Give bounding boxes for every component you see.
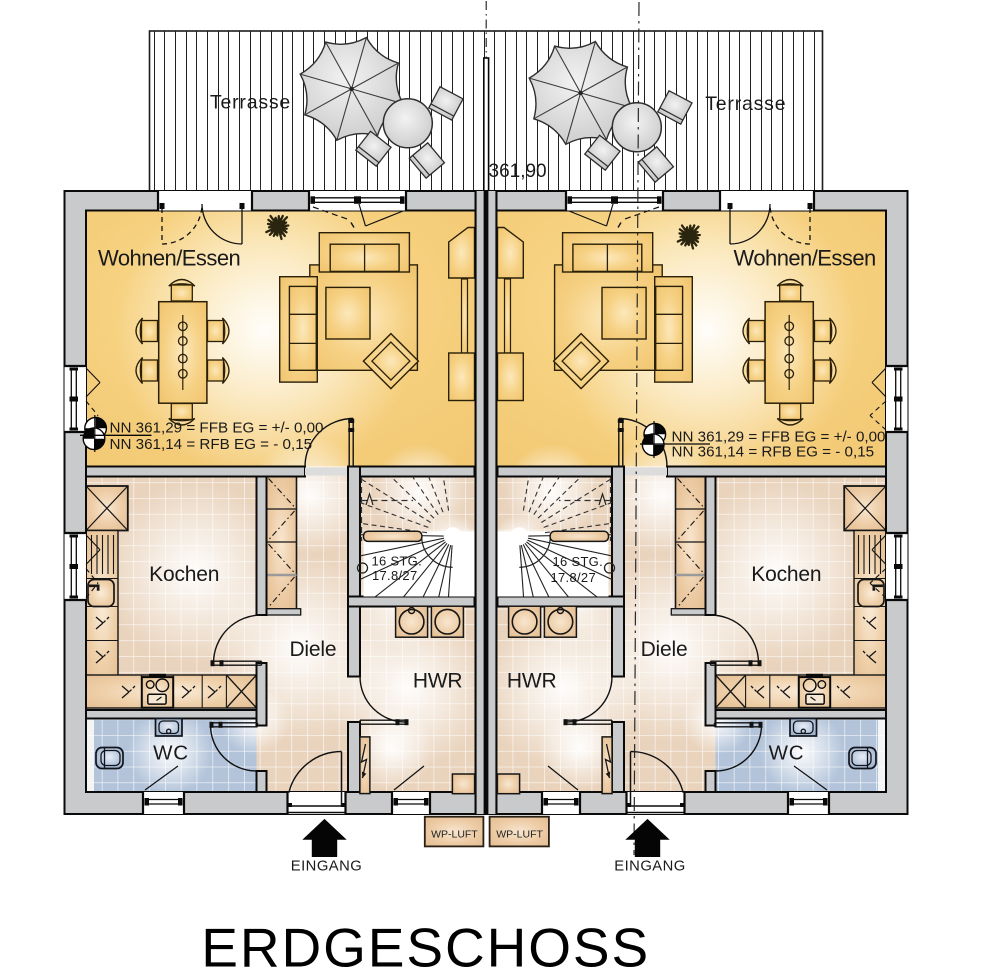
svg-text:17.8/27: 17.8/27: [551, 570, 596, 585]
svg-text:16 STG.: 16 STG.: [372, 554, 423, 569]
svg-text:WC: WC: [153, 742, 189, 765]
svg-text:WC: WC: [769, 742, 805, 765]
svg-text:ERDGESCHOSS: ERDGESCHOSS: [201, 917, 650, 976]
svg-text:17.8/27: 17.8/27: [372, 568, 417, 583]
svg-text:361,90: 361,90: [489, 161, 547, 182]
svg-text:16 STG.: 16 STG.: [553, 554, 604, 569]
svg-text:Wohnen/Essen: Wohnen/Essen: [98, 246, 240, 271]
svg-text:NN 361,14 = RFB EG = - 0,15: NN 361,14 = RFB EG = - 0,15: [672, 443, 875, 460]
svg-text:HWR: HWR: [413, 669, 463, 692]
svg-text:EINGANG: EINGANG: [614, 858, 685, 874]
svg-text:Diele: Diele: [641, 638, 688, 661]
svg-text:NN 361,14 = RFB EG = - 0,15: NN 361,14 = RFB EG = - 0,15: [110, 436, 313, 453]
svg-text:EINGANG: EINGANG: [291, 858, 362, 874]
svg-text:Kochen: Kochen: [149, 563, 219, 586]
svg-text:Diele: Diele: [289, 638, 336, 661]
svg-text:NN 361,29 = FFB EG = +/- 0,00: NN 361,29 = FFB EG = +/- 0,00: [110, 420, 324, 437]
svg-text:Terrasse: Terrasse: [210, 92, 291, 114]
svg-text:Kochen: Kochen: [751, 563, 821, 586]
svg-text:WP-LUFT: WP-LUFT: [496, 829, 543, 841]
svg-text:Terrasse: Terrasse: [705, 93, 786, 115]
svg-text:WP-LUFT: WP-LUFT: [431, 829, 478, 841]
svg-text:Wohnen/Essen: Wohnen/Essen: [734, 246, 876, 271]
svg-text:HWR: HWR: [507, 669, 557, 692]
